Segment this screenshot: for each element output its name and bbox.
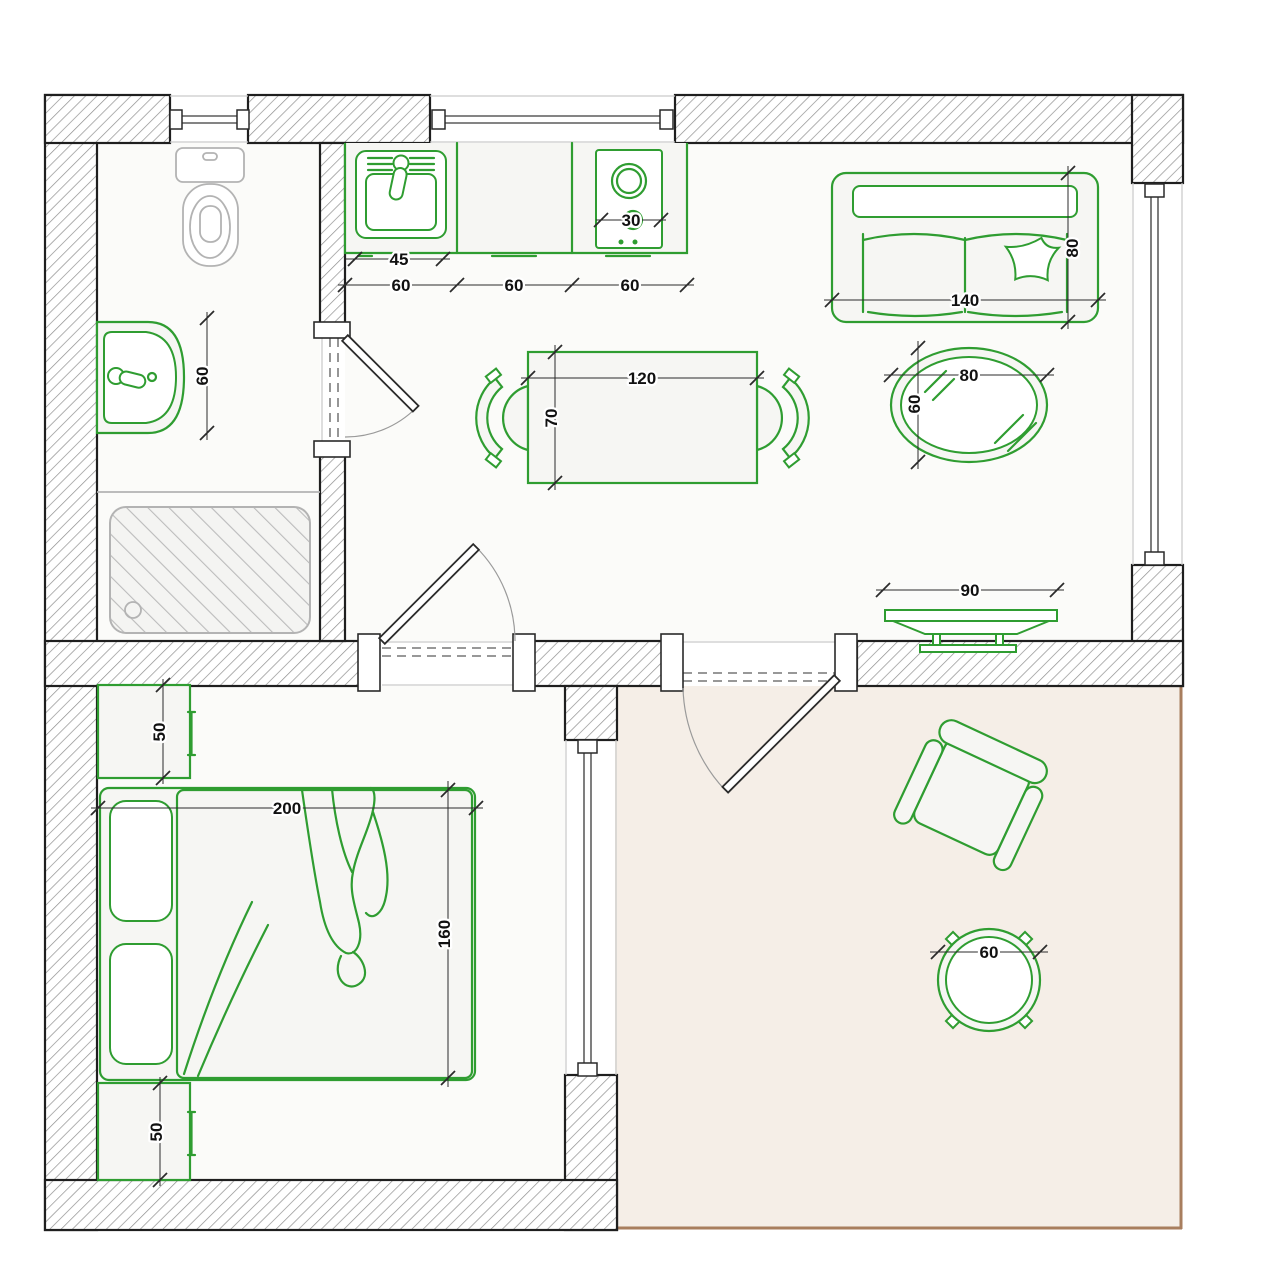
toilet-button xyxy=(203,153,217,160)
tv-stand-post xyxy=(996,634,1003,645)
floorplan-svg: 60 45 60 60 60 30 120 xyxy=(0,0,1280,1280)
terrace xyxy=(615,686,1182,1229)
wall-top-2 xyxy=(248,95,430,143)
dim-label: 60 xyxy=(193,367,212,386)
window-cap xyxy=(1145,552,1164,565)
cooktop-knob xyxy=(619,240,624,245)
dim-label: 45 xyxy=(390,250,409,269)
wall-bedroom-terrace-upper xyxy=(565,686,617,740)
door-jamb xyxy=(358,634,380,691)
dim-label: 60 xyxy=(505,276,524,295)
window-cap xyxy=(432,110,445,129)
wardrobe-top xyxy=(98,685,195,778)
window-cap xyxy=(660,110,673,129)
wall-bath-kitchen-lower xyxy=(320,455,345,641)
door-jamb xyxy=(314,322,350,338)
wall-top-1 xyxy=(45,95,170,143)
wall-mid-3 xyxy=(857,641,1183,686)
wall-right-upper xyxy=(1132,95,1183,183)
door-jamb xyxy=(513,634,535,691)
bed xyxy=(100,788,475,1080)
window-cap xyxy=(237,110,249,129)
tv-stand-post xyxy=(933,634,940,645)
dim-label: 90 xyxy=(961,581,980,600)
toilet xyxy=(176,148,244,266)
dim-label: 60 xyxy=(905,395,924,414)
window-cap xyxy=(578,740,597,753)
dim-label: 160 xyxy=(435,920,454,948)
cooktop xyxy=(596,150,662,248)
dim-label: 60 xyxy=(621,276,640,295)
floorplan-canvas: 60 45 60 60 60 30 120 xyxy=(0,0,1280,1280)
door-jamb xyxy=(314,441,350,457)
dim-label: 70 xyxy=(542,409,561,428)
dim-label: 140 xyxy=(951,291,979,310)
dim-label: 60 xyxy=(392,276,411,295)
window-cap xyxy=(170,110,182,129)
kitchen-sink xyxy=(356,151,446,238)
dim-label: 80 xyxy=(960,366,979,385)
washbasin xyxy=(97,322,184,433)
wardrobe-body xyxy=(98,1083,190,1180)
bed-pillow xyxy=(110,944,172,1064)
tv-stand-base xyxy=(920,645,1016,652)
terrace-floor xyxy=(615,686,1182,1229)
window-cap xyxy=(578,1063,597,1076)
wall-bath-kitchen-upper xyxy=(320,143,345,324)
dim-label: 30 xyxy=(622,211,641,230)
cooktop-knob xyxy=(633,240,638,245)
sofa-backrest xyxy=(853,186,1077,217)
kitchen xyxy=(345,143,687,256)
dim-label: 200 xyxy=(273,799,301,818)
bed-duvet xyxy=(177,790,472,1078)
wall-mid-2 xyxy=(515,641,673,686)
dim-label: 80 xyxy=(1063,239,1082,258)
dim-label: 50 xyxy=(147,1123,166,1142)
wall-mid-1 xyxy=(45,641,367,686)
wardrobe-body xyxy=(98,685,190,778)
dim-label: 60 xyxy=(980,943,999,962)
window-cap xyxy=(1145,184,1164,197)
dim-label: 50 xyxy=(150,723,169,742)
wall-top-3 xyxy=(675,95,1183,143)
door-jamb xyxy=(661,634,683,691)
dim-label: 120 xyxy=(628,369,656,388)
wall-bottom xyxy=(45,1180,617,1230)
shower xyxy=(97,492,320,633)
bed-pillow xyxy=(110,801,172,921)
tv-screen xyxy=(885,610,1057,621)
